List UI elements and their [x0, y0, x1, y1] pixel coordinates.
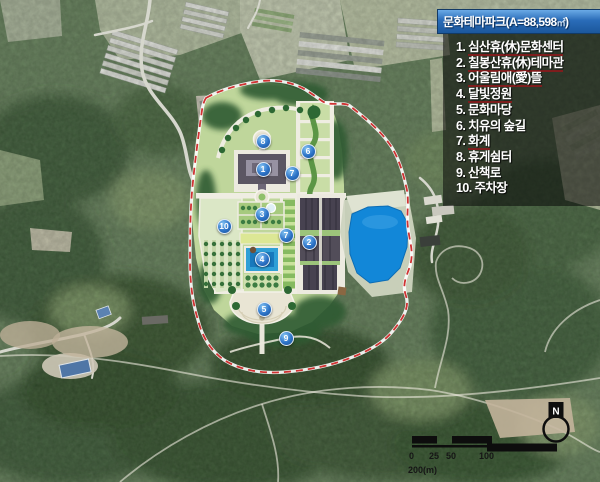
legend-item-number: 2.	[456, 56, 465, 70]
legend-panel: 문화테마파크(A=88,598㎡) 1. 심산휴(休)문화센터 2. 칠봉산휴(…	[437, 9, 600, 206]
legend-item-number: 10.	[456, 181, 472, 195]
legend-item-number: 5.	[456, 103, 465, 117]
legend-item: 3. 어울림애(愛)뜰	[456, 71, 596, 87]
plan-marker-number: 4	[260, 255, 265, 264]
legend-item: 9. 산책로	[456, 166, 596, 182]
north-label: N	[552, 407, 559, 418]
legend-item-number: 7.	[456, 134, 465, 148]
site-plan-map: 0 25 50 100 200(m) N 8 1 6 7	[0, 0, 600, 482]
legend-item: 10. 주차장	[456, 181, 596, 197]
legend-item-label: 휴게쉼터	[468, 150, 512, 164]
plan-marker: 9	[279, 331, 294, 346]
legend-item-label: 심산휴(休)문화센터	[468, 40, 563, 56]
plan-marker: 5	[257, 302, 272, 317]
plan-marker-number: 7	[284, 231, 289, 240]
legend-item: 5. 문화마당	[456, 103, 596, 119]
plan-marker: 3	[255, 207, 270, 222]
legend-item-label: 주차장	[474, 181, 507, 195]
plan-marker: 7	[285, 166, 300, 181]
legend-title-close: )	[565, 15, 568, 29]
legend-item-label: 달빛정원	[468, 87, 512, 103]
scale-unit-label: 200(m)	[408, 465, 437, 475]
legend-item-number: 4.	[456, 87, 465, 101]
legend-item: 6. 치유의 숲길	[456, 119, 596, 135]
plan-marker-number: 2	[307, 238, 312, 247]
legend-item-label: 칠봉산휴(休)테마관	[468, 56, 563, 72]
plan-marker-number: 9	[284, 334, 289, 343]
plan-marker: 10	[217, 219, 232, 234]
legend-item: 1. 심산휴(休)문화센터	[456, 40, 596, 56]
legend-item-number: 9.	[456, 166, 465, 180]
legend-item-label: 문화마당	[468, 103, 512, 117]
legend-title: 문화테마파크(A=88,598㎡)	[437, 9, 600, 34]
plan-marker-number: 7	[290, 169, 295, 178]
scale-label-100: 100	[479, 451, 494, 461]
legend-item-number: 1.	[456, 40, 465, 54]
legend-item-label: 치유의 숲길	[468, 119, 525, 133]
plan-marker-number: 10	[219, 222, 228, 231]
plan-marker: 4	[255, 252, 270, 267]
plan-marker: 1	[256, 162, 271, 177]
legend-title-unit: ㎡	[557, 18, 565, 28]
plan-marker-number: 6	[306, 147, 311, 156]
scale-label-0: 0	[409, 451, 414, 461]
scale-label-50: 50	[446, 451, 456, 461]
legend-item-label: 산책로	[468, 166, 501, 180]
legend-item: 2. 칠봉산휴(休)테마관	[456, 56, 596, 72]
legend-item-number: 8.	[456, 150, 465, 164]
plan-marker-number: 5	[262, 305, 267, 314]
legend-title-text: 문화테마파크(A=88,598	[443, 15, 557, 29]
plan-marker: 2	[302, 235, 317, 250]
plan-marker: 6	[301, 144, 316, 159]
plan-marker: 8	[256, 134, 271, 149]
plan-marker-number: 8	[261, 137, 266, 146]
legend-item: 7. 화계	[456, 134, 596, 150]
legend-item-label: 화계	[468, 134, 490, 150]
legend-item-number: 3.	[456, 71, 465, 85]
scale-label-25: 25	[429, 451, 439, 461]
legend-item: 4. 달빛정원	[456, 87, 596, 103]
plan-marker-number: 3	[260, 210, 265, 219]
legend-list: 1. 심산휴(休)문화센터 2. 칠봉산휴(休)테마관 3. 어울림애(愛)뜰 …	[443, 34, 600, 206]
legend-item-label: 어울림애(愛)뜰	[468, 71, 542, 87]
plan-marker: 7	[279, 228, 294, 243]
legend-item: 8. 휴게쉼터	[456, 150, 596, 166]
plan-marker-number: 1	[261, 165, 266, 174]
legend-item-number: 6.	[456, 119, 465, 133]
